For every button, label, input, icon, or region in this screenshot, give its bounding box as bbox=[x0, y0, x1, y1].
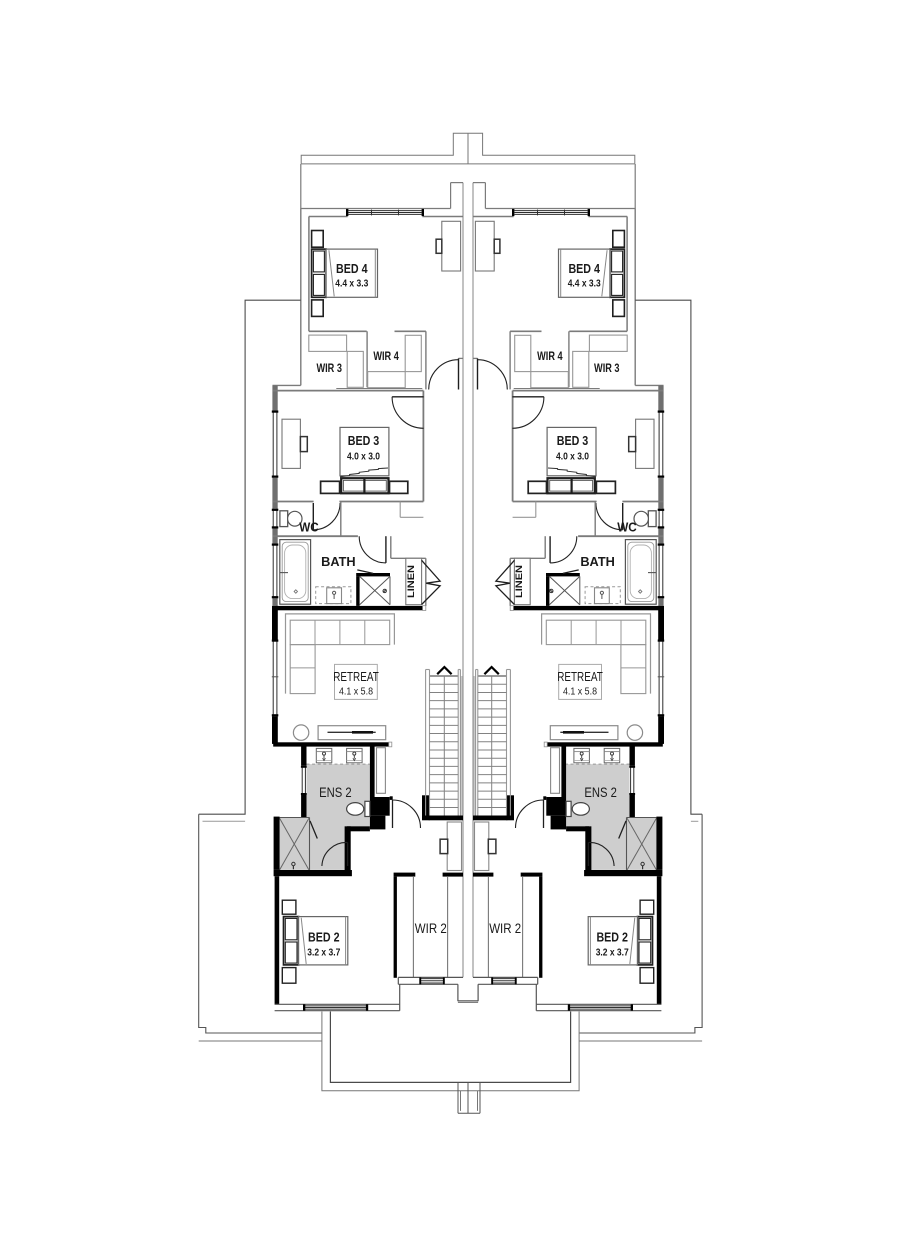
svg-text:WC: WC bbox=[299, 521, 319, 535]
svg-text:BED 2: BED 2 bbox=[308, 930, 340, 945]
svg-text:4.1 x 5.8: 4.1 x 5.8 bbox=[339, 687, 373, 698]
svg-text:4.0 x 3.0: 4.0 x 3.0 bbox=[556, 452, 589, 463]
svg-text:LINEN: LINEN bbox=[514, 565, 525, 598]
svg-text:BED 2: BED 2 bbox=[596, 930, 628, 945]
svg-text:BATH: BATH bbox=[580, 554, 615, 569]
svg-text:ENS 2: ENS 2 bbox=[319, 785, 352, 800]
svg-text:BED 4: BED 4 bbox=[336, 261, 368, 276]
svg-text:LINEN: LINEN bbox=[406, 565, 417, 598]
svg-text:WC: WC bbox=[617, 521, 637, 535]
svg-text:WIR 4: WIR 4 bbox=[373, 351, 399, 363]
svg-text:BED 3: BED 3 bbox=[348, 433, 380, 448]
svg-text:WIR 2: WIR 2 bbox=[415, 921, 447, 936]
svg-text:3.2 x 3.7: 3.2 x 3.7 bbox=[596, 948, 629, 959]
svg-text:RETREAT: RETREAT bbox=[333, 670, 379, 684]
svg-text:BED 4: BED 4 bbox=[568, 261, 600, 276]
svg-text:WIR 4: WIR 4 bbox=[537, 351, 563, 363]
svg-text:3.2 x 3.7: 3.2 x 3.7 bbox=[307, 948, 340, 959]
svg-text:BED 3: BED 3 bbox=[557, 433, 589, 448]
svg-text:4.4 x 3.3: 4.4 x 3.3 bbox=[568, 279, 601, 290]
svg-text:4.1 x 5.8: 4.1 x 5.8 bbox=[563, 687, 597, 698]
svg-text:WIR 2: WIR 2 bbox=[489, 921, 521, 936]
svg-text:WIR 3: WIR 3 bbox=[594, 363, 620, 375]
svg-text:RETREAT: RETREAT bbox=[557, 670, 603, 684]
svg-text:4.4 x 3.3: 4.4 x 3.3 bbox=[335, 279, 368, 290]
svg-text:BATH: BATH bbox=[321, 554, 356, 569]
svg-text:WIR 3: WIR 3 bbox=[316, 363, 342, 375]
svg-text:4.0 x 3.0: 4.0 x 3.0 bbox=[347, 452, 380, 463]
svg-text:ENS 2: ENS 2 bbox=[584, 785, 617, 800]
